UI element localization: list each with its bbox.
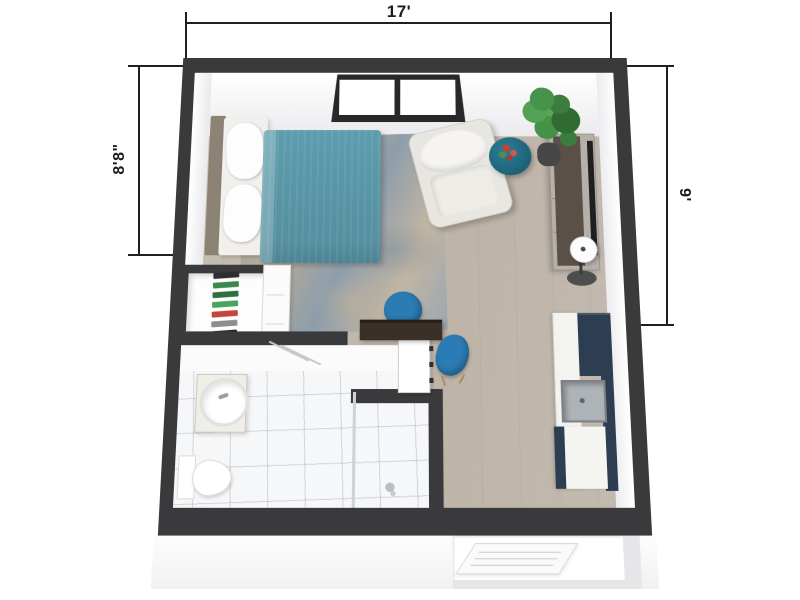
door-hinge — [429, 362, 433, 367]
closet-item — [212, 291, 238, 299]
pillow — [226, 122, 264, 180]
left-dimension-label: 8'8" — [111, 129, 129, 189]
kitchen-sink — [561, 380, 608, 423]
door-panel-line — [474, 558, 557, 559]
closet-item — [213, 272, 239, 279]
door-hinge — [429, 346, 433, 351]
lamp-finial — [581, 247, 586, 252]
closet-item — [212, 300, 238, 308]
closet-item — [212, 310, 238, 318]
bathroom-wall — [176, 331, 348, 345]
right-dimension-label: 9' — [675, 165, 693, 225]
bathroom-door-leaf — [398, 337, 431, 393]
door-panel-line — [470, 565, 553, 566]
top-dimension-tick-right — [610, 12, 612, 60]
top-dimension-label: 17' — [369, 2, 429, 22]
door-panel-line — [479, 552, 562, 553]
closet-item — [213, 281, 239, 288]
flower — [506, 155, 512, 160]
entry-door — [455, 543, 579, 574]
kitchen-lower-counter — [554, 427, 608, 489]
right-dimension-line — [666, 66, 668, 326]
bathroom-wall — [428, 403, 443, 508]
flower-leaf — [499, 152, 507, 158]
window-pane — [400, 80, 455, 115]
flower — [502, 144, 510, 151]
potted-plant-icon — [529, 88, 555, 111]
window-pane — [339, 80, 395, 115]
floor-lamp-shade — [569, 236, 598, 262]
plant-pot — [537, 143, 561, 167]
floor-plan-image: 17' 8'8" 9' — [0, 0, 800, 600]
door-hinge — [429, 378, 433, 383]
cabinet-front — [554, 427, 566, 489]
bed-duvet — [259, 130, 381, 263]
right-dimension-tick-bottom — [638, 324, 674, 326]
left-dimension-line — [138, 66, 140, 256]
desk — [360, 320, 443, 341]
outer-wall-bottom — [158, 508, 652, 536]
top-dimension-line — [186, 22, 612, 24]
side-table-pouf — [489, 137, 532, 175]
outer-wall-top — [183, 58, 628, 73]
left-dimension-tick-top — [128, 65, 188, 67]
sink-drain — [580, 398, 585, 403]
kitchen-tall-cabinet — [574, 313, 613, 376]
closet-item — [211, 320, 237, 328]
shower-fixture — [385, 483, 394, 492]
drawer-line — [266, 294, 284, 295]
window — [331, 75, 465, 123]
top-dimension-tick-left — [185, 12, 187, 60]
apartment-plan — [155, 58, 655, 589]
drawer-line — [265, 324, 283, 325]
